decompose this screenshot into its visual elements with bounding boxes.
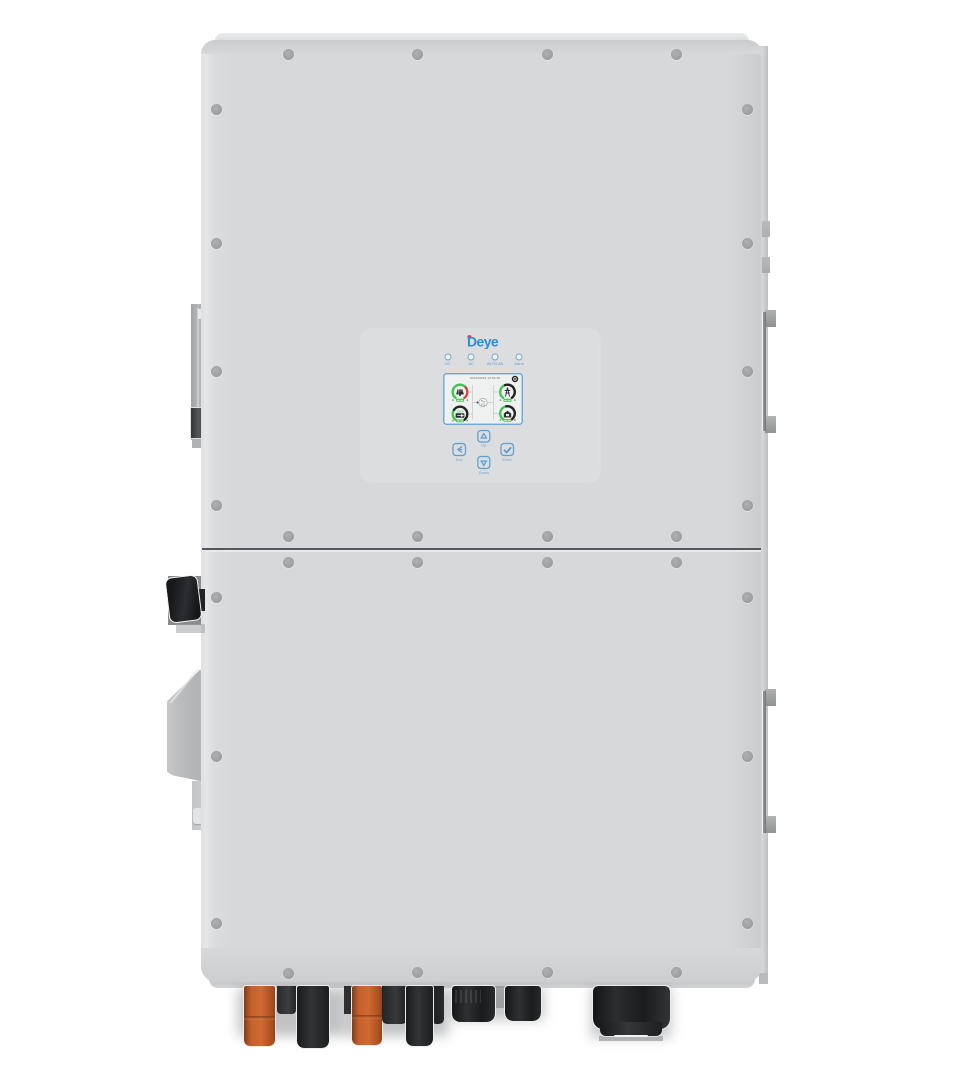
svg-text:DC: DC (445, 362, 451, 366)
svg-text:Down: Down (479, 470, 489, 475)
svg-text:AC: AC (469, 362, 474, 366)
svg-text:Esc: Esc (456, 457, 463, 462)
svg-text:Deye: Deye (467, 334, 499, 350)
svg-text:2023/09/19 10:54:48: 2023/09/19 10:54:48 (470, 376, 500, 380)
svg-text:100%: 100% (456, 410, 464, 414)
svg-text:Wi-Fi/LAN: Wi-Fi/LAN (487, 362, 504, 366)
svg-text:Alarm: Alarm (514, 362, 523, 366)
